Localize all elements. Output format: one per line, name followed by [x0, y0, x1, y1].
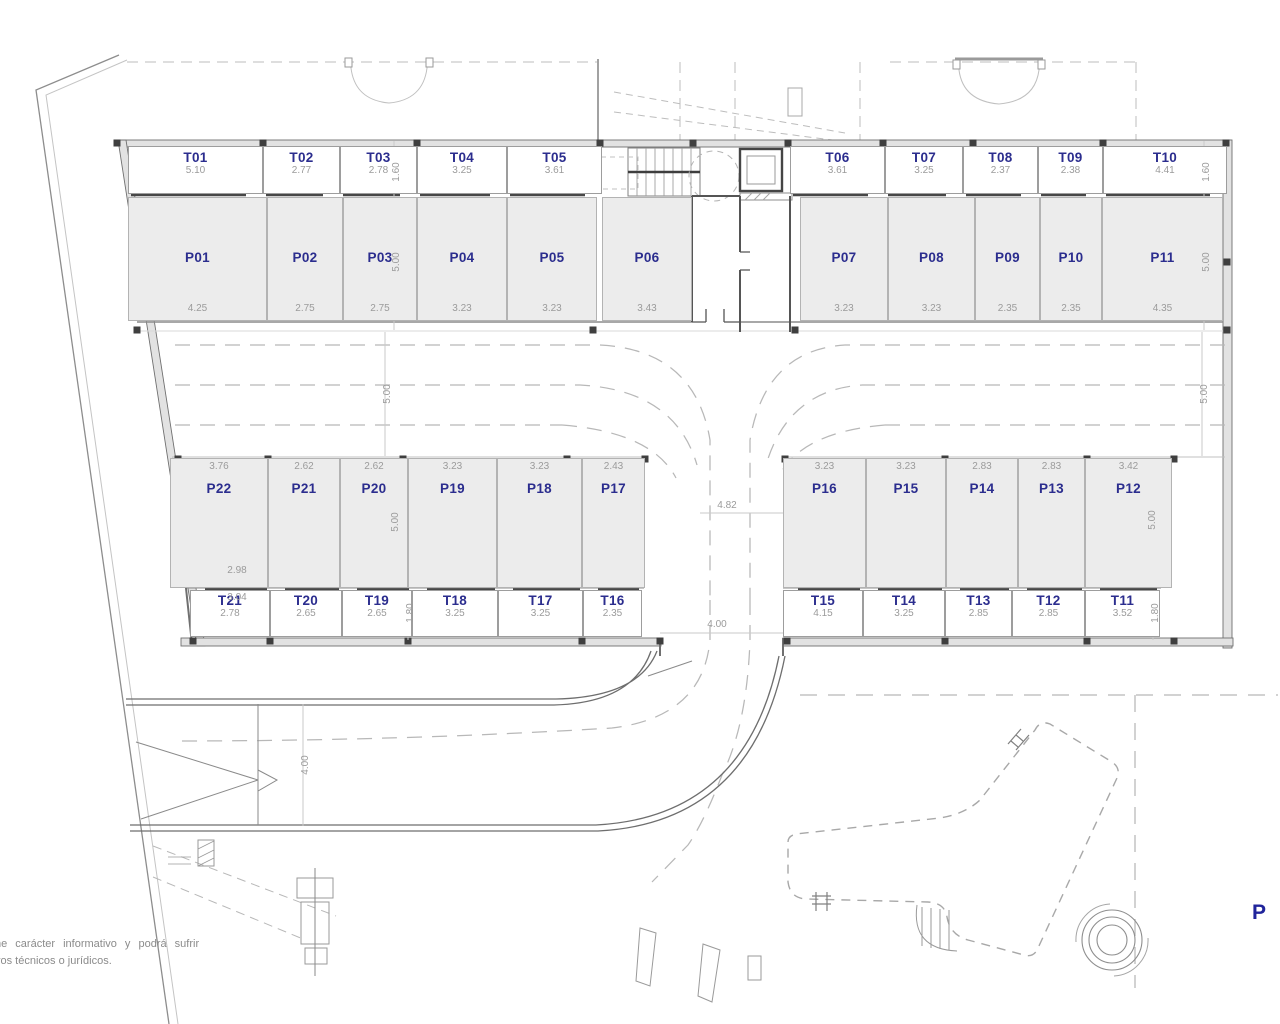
room-id-label: P20 — [341, 481, 407, 496]
pillar — [579, 638, 586, 645]
room-T18: T183.25 — [412, 590, 498, 637]
room-T17: T173.25 — [498, 590, 583, 637]
room-id-label: P04 — [418, 250, 506, 265]
pillar — [657, 638, 664, 645]
room-T07: T073.25 — [885, 146, 963, 194]
room-id-label: P09 — [976, 250, 1039, 265]
dimension-label: 3.04 — [227, 593, 246, 603]
room-dimension-label: 2.43 — [583, 461, 644, 472]
room-dimension-label: 2.65 — [343, 608, 411, 619]
driveway-ramp — [126, 651, 785, 831]
room-P14: P142.83 — [946, 458, 1018, 588]
room-dimension-label: 2.83 — [1019, 461, 1084, 472]
room-dimension-label: 3.25 — [413, 608, 497, 619]
pillar — [784, 638, 791, 645]
disclaimer-text: ne carácter informativo y podrá sufrir v… — [0, 936, 255, 970]
disclaimer-line-1: ne carácter informativo y podrá sufrir — [0, 936, 255, 953]
floor-plan: T015.10T022.77T032.78T043.25T053.61T063.… — [0, 0, 1280, 1024]
pillar — [267, 638, 274, 645]
dimension-label: 5.00 — [391, 512, 401, 531]
room-dimension-label: 2.75 — [268, 303, 342, 314]
room-T08: T082.37 — [963, 146, 1038, 194]
room-P06: P063.43 — [602, 197, 692, 321]
room-dimension-label: 3.23 — [867, 461, 945, 472]
room-dimension-label: 3.43 — [603, 303, 691, 314]
room-dimension-label: 2.62 — [341, 461, 407, 472]
pillar — [690, 140, 697, 147]
dimension-label: 2.98 — [227, 566, 246, 576]
room-T09: T092.38 — [1038, 146, 1103, 194]
room-dimension-label: 2.85 — [946, 608, 1011, 619]
room-dimension-label: 3.42 — [1086, 461, 1171, 472]
room-id-label: T05 — [508, 150, 601, 165]
room-id-label: T11 — [1086, 593, 1159, 608]
room-dimension-label: 2.77 — [264, 165, 339, 176]
room-P16: P163.23 — [783, 458, 866, 588]
room-P07: P073.23 — [800, 197, 888, 321]
pillar — [590, 327, 597, 334]
plan-title-letter: P — [1252, 901, 1266, 925]
room-T06: T063.61 — [790, 146, 885, 194]
room-dimension-label: 3.25 — [499, 608, 582, 619]
room-id-label: P01 — [129, 250, 266, 265]
room-id-label: T19 — [343, 593, 411, 608]
room-T02: T022.77 — [263, 146, 340, 194]
room-dimension-label: 3.61 — [791, 165, 884, 176]
room-P15: P153.23 — [866, 458, 946, 588]
room-P13: P132.83 — [1018, 458, 1085, 588]
upper-floor-outline — [127, 58, 1136, 140]
room-dimension-label: 3.23 — [498, 461, 581, 472]
room-dimension-label: 2.37 — [964, 165, 1037, 176]
room-dimension-label: 2.65 — [271, 608, 341, 619]
dimension-label: 1.60 — [392, 162, 402, 181]
room-P01: P014.25 — [128, 197, 267, 321]
room-id-label: T06 — [791, 150, 884, 165]
dimension-label: 5.00 — [392, 252, 402, 271]
room-id-label: P16 — [784, 481, 865, 496]
room-T01: T015.10 — [128, 146, 263, 194]
room-id-label: T20 — [271, 593, 341, 608]
room-dimension-label: 2.78 — [341, 165, 416, 176]
room-T13: T132.85 — [945, 590, 1012, 637]
room-id-label: P07 — [801, 250, 887, 265]
room-P04: P043.23 — [417, 197, 507, 321]
dimension-label: 1.60 — [1202, 162, 1212, 181]
pillar — [114, 140, 121, 147]
room-dimension-label: 3.25 — [886, 165, 962, 176]
room-id-label: P15 — [867, 481, 945, 496]
dimension-label: 4.00 — [707, 620, 726, 630]
room-id-label: P03 — [344, 250, 416, 265]
room-T16: T162.35 — [583, 590, 642, 637]
room-id-label: T17 — [499, 593, 582, 608]
room-dimension-label: 3.76 — [171, 461, 267, 472]
pillar — [1224, 327, 1231, 334]
room-id-label: T15 — [784, 593, 862, 608]
room-dimension-label: 3.23 — [508, 303, 596, 314]
room-P12: P123.42 — [1085, 458, 1172, 588]
room-dimension-label: 2.38 — [1039, 165, 1102, 176]
room-P08: P083.23 — [888, 197, 975, 321]
room-id-label: T13 — [946, 593, 1011, 608]
room-P05: P053.23 — [507, 197, 597, 321]
room-id-label: T01 — [129, 150, 262, 165]
room-id-label: P06 — [603, 250, 691, 265]
room-id-label: P10 — [1041, 250, 1101, 265]
room-id-label: T12 — [1013, 593, 1084, 608]
room-id-label: P22 — [171, 481, 267, 496]
room-dimension-label: 2.78 — [191, 608, 269, 619]
pillar — [190, 638, 197, 645]
room-id-label: P02 — [268, 250, 342, 265]
room-dimension-label: 3.61 — [508, 165, 601, 176]
dimension-label: 4.00 — [301, 755, 311, 774]
room-id-label: T03 — [341, 150, 416, 165]
room-P09: P092.35 — [975, 197, 1040, 321]
room-dimension-label: 2.35 — [976, 303, 1039, 314]
room-T05: T053.61 — [507, 146, 602, 194]
room-id-label: T09 — [1039, 150, 1102, 165]
room-P02: P022.75 — [267, 197, 343, 321]
room-P03: P032.75 — [343, 197, 417, 321]
room-T04: T043.25 — [417, 146, 507, 194]
pillar — [1171, 638, 1178, 645]
room-P19: P193.23 — [408, 458, 497, 588]
room-dimension-label: 2.83 — [947, 461, 1017, 472]
room-dimension-label: 3.23 — [784, 461, 865, 472]
room-T15: T154.15 — [783, 590, 863, 637]
room-id-label: P13 — [1019, 481, 1084, 496]
room-id-label: T07 — [886, 150, 962, 165]
room-dimension-label: 4.25 — [129, 303, 266, 314]
room-id-label: P21 — [269, 481, 339, 496]
room-T03: T032.78 — [340, 146, 417, 194]
room-id-label: P19 — [409, 481, 496, 496]
room-id-label: T08 — [964, 150, 1037, 165]
room-dimension-label: 5.10 — [129, 165, 262, 176]
room-dimension-label: 3.25 — [864, 608, 944, 619]
room-dimension-label: 4.35 — [1103, 303, 1222, 314]
room-id-label: P12 — [1086, 481, 1171, 496]
room-T19: T192.65 — [342, 590, 412, 637]
room-dimension-label: 3.23 — [409, 461, 496, 472]
dimension-label: 5.00 — [1202, 252, 1212, 271]
dimension-label: 5.00 — [1148, 510, 1158, 529]
room-T20: T202.65 — [270, 590, 342, 637]
room-P21: P212.62 — [268, 458, 340, 588]
room-P17: P172.43 — [582, 458, 645, 588]
room-id-label: P18 — [498, 481, 581, 496]
room-T11: T113.52 — [1085, 590, 1160, 637]
room-T14: T143.25 — [863, 590, 945, 637]
room-id-label: P14 — [947, 481, 1017, 496]
room-dimension-label: 3.23 — [801, 303, 887, 314]
room-dimension-label: 3.25 — [418, 165, 506, 176]
room-id-label: T18 — [413, 593, 497, 608]
room-dimension-label: 2.62 — [269, 461, 339, 472]
room-dimension-label: 4.15 — [784, 608, 862, 619]
pool-outline — [788, 723, 1148, 976]
room-id-label: T14 — [864, 593, 944, 608]
room-id-label: T16 — [584, 593, 641, 608]
room-dimension-label: 2.75 — [344, 303, 416, 314]
room-T12: T122.85 — [1012, 590, 1085, 637]
room-id-label: T04 — [418, 150, 506, 165]
room-P22: P223.76 — [170, 458, 268, 588]
dimension-label: 1.80 — [406, 603, 416, 622]
pillar — [1224, 259, 1231, 266]
room-dimension-label: 2.85 — [1013, 608, 1084, 619]
dimension-label: 5.00 — [383, 384, 393, 403]
room-dimension-label: 2.35 — [584, 608, 641, 619]
room-id-label: P17 — [583, 481, 644, 496]
room-P18: P183.23 — [497, 458, 582, 588]
dimension-label: 5.00 — [1200, 384, 1210, 403]
room-P10: P102.35 — [1040, 197, 1102, 321]
room-dimension-label: 3.23 — [418, 303, 506, 314]
room-id-label: T02 — [264, 150, 339, 165]
pillar — [1084, 638, 1091, 645]
room-id-label: P08 — [889, 250, 974, 265]
room-id-label: P05 — [508, 250, 596, 265]
pillar — [134, 327, 141, 334]
disclaimer-line-2: vos técnicos o jurídicos. — [0, 953, 255, 970]
room-dimension-label: 3.52 — [1086, 608, 1159, 619]
pillar — [942, 638, 949, 645]
dimension-label: 1.80 — [1151, 603, 1161, 622]
drive-aisle-dashes — [175, 345, 1278, 988]
room-dimension-label: 2.35 — [1041, 303, 1101, 314]
dimension-label: 4.82 — [717, 501, 736, 511]
pillar — [792, 327, 799, 334]
room-dimension-label: 3.23 — [889, 303, 974, 314]
